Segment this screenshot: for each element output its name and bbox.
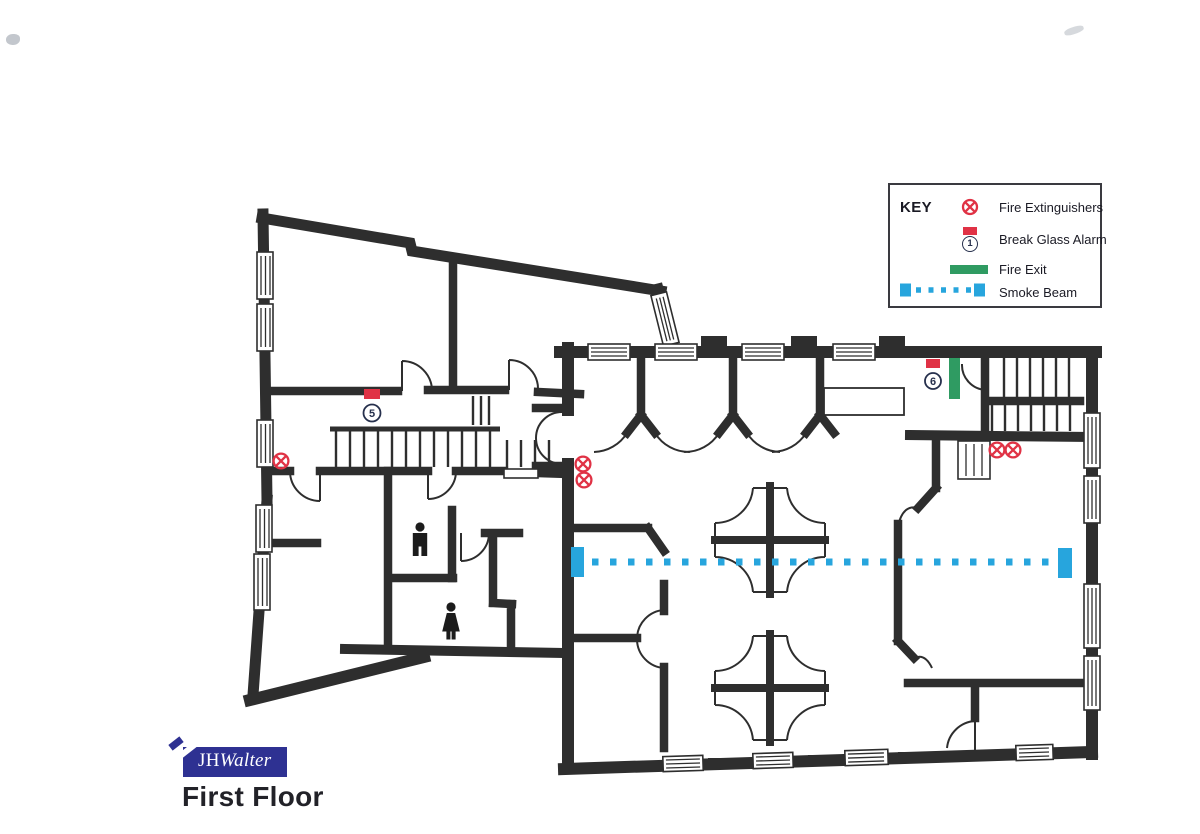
alarm-number: 1	[962, 236, 978, 252]
break-glass-alarm-number: 6	[930, 376, 936, 388]
smoke-beam	[571, 547, 1072, 578]
fire-exit-marker	[949, 358, 960, 399]
break-glass-alarm-6: 6	[925, 359, 941, 389]
floor-plan-drawing: 5 6	[0, 0, 1200, 834]
legend-row-break-glass-alarm: 1 Break Glass Alarm	[900, 221, 1107, 257]
desk-cluster	[715, 634, 825, 742]
stairs-top-right	[992, 358, 1070, 431]
legend-label: Break Glass Alarm	[990, 232, 1107, 247]
male-toilet-icon	[413, 522, 427, 556]
break-glass-alarm-5: 5	[364, 389, 381, 422]
scan-artifact	[6, 34, 20, 45]
fire-exit-icon	[950, 265, 988, 274]
smoke-beam-icon	[900, 283, 990, 302]
floor-plan-page: 5 6 KEY Fire	[0, 0, 1200, 834]
break-glass-alarm-number: 5	[369, 408, 375, 420]
break-glass-alarm-icon: 1	[950, 227, 990, 252]
female-toilet-icon	[442, 602, 460, 639]
fire-extinguisher-icon	[990, 443, 1005, 458]
legend-row-smoke-beam: Smoke Beam	[900, 282, 1107, 302]
legend-row-fire-extinguishers: KEY Fire Extinguishers	[900, 193, 1107, 221]
fire-extinguisher-icon	[950, 197, 990, 217]
table	[824, 388, 904, 415]
jhwalter-logo: JHWalter	[183, 747, 287, 777]
legend-label: Fire Extinguishers	[990, 200, 1107, 215]
smoke-beam-emitter-icon	[571, 547, 584, 577]
page-title: First Floor	[182, 781, 324, 813]
legend-row-fire-exit: Fire Exit	[900, 257, 1107, 282]
legend-label: Smoke Beam	[990, 285, 1107, 300]
legend: KEY Fire Extinguishers 1 Break Glass Ala…	[888, 183, 1102, 308]
fire-extinguisher-icon	[576, 457, 591, 472]
fire-extinguisher-icon	[274, 454, 289, 469]
desk-cluster	[715, 486, 825, 594]
legend-label: Fire Exit	[990, 262, 1107, 277]
fire-extinguisher-icon	[1006, 443, 1021, 458]
stairs-left	[330, 396, 549, 467]
smoke-beam-receiver-icon	[1058, 548, 1072, 578]
fire-extinguisher-icon	[577, 473, 592, 488]
legend-title: KEY	[900, 199, 950, 216]
logo-text: JHWalter	[183, 747, 287, 772]
